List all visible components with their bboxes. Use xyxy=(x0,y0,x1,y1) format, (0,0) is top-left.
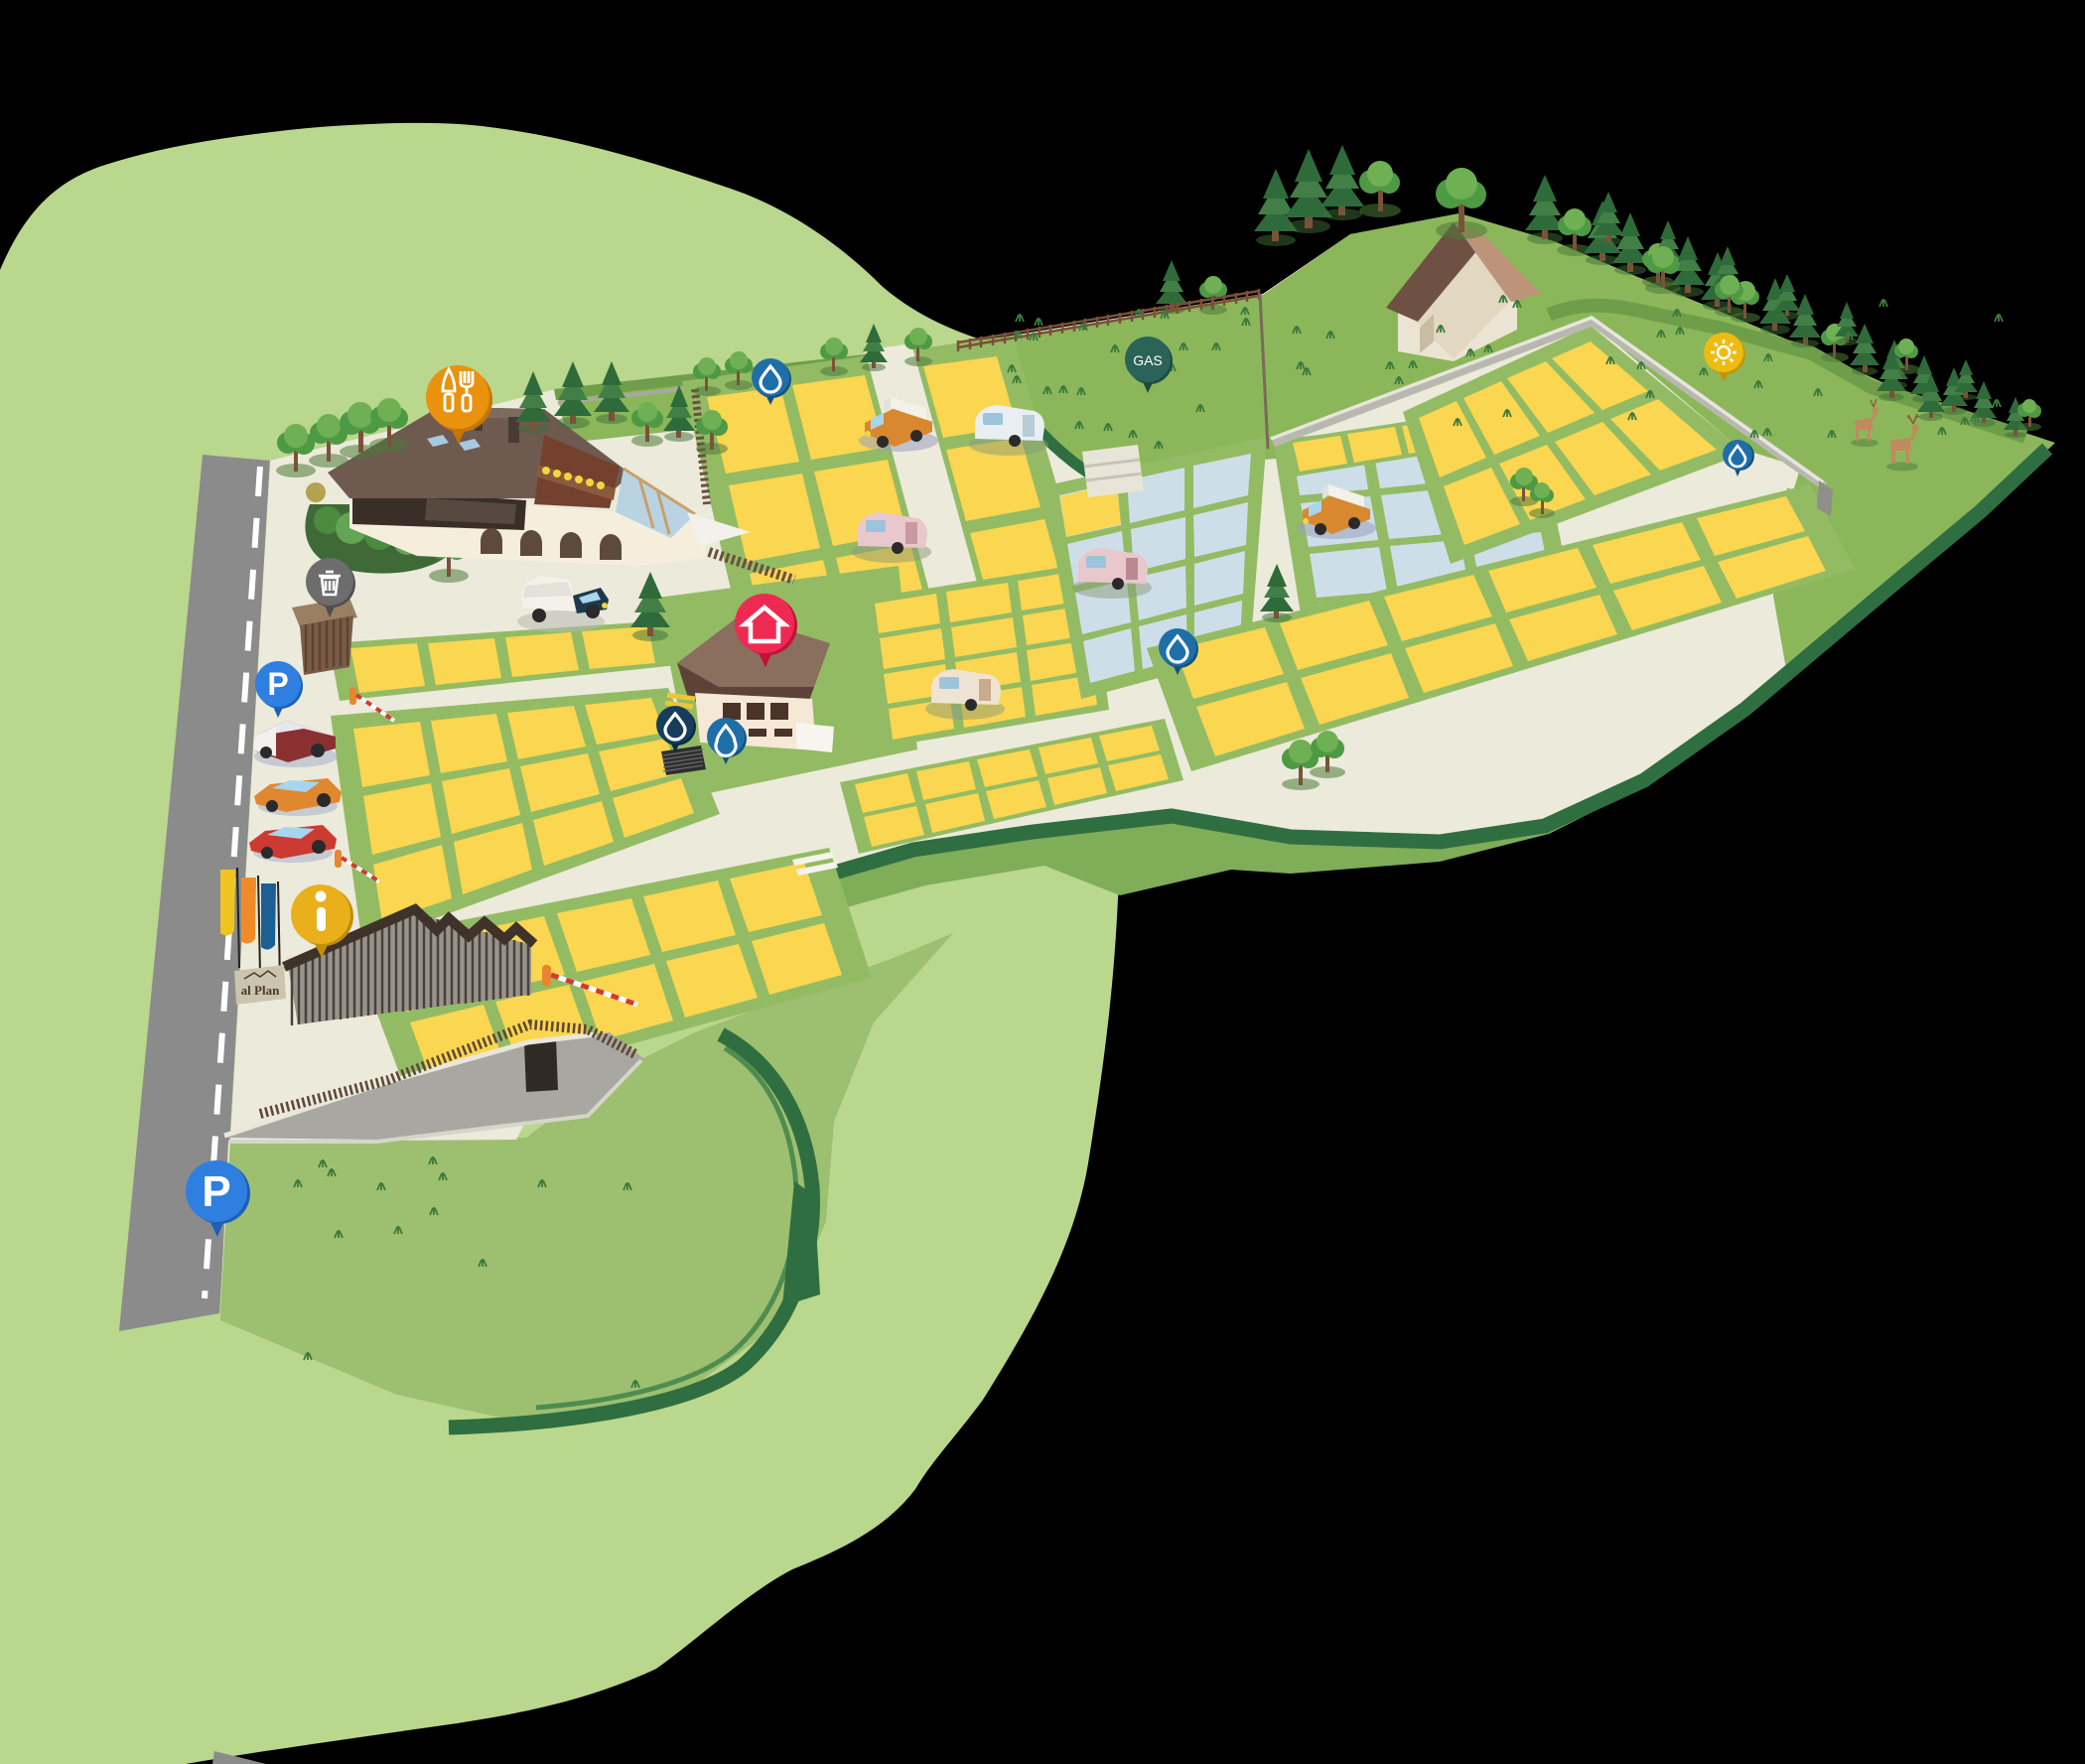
svg-text:al Plan: al Plan xyxy=(241,983,280,998)
svg-text:P: P xyxy=(267,666,288,702)
svg-text:GAS: GAS xyxy=(1133,352,1163,368)
svg-text:P: P xyxy=(202,1167,230,1216)
